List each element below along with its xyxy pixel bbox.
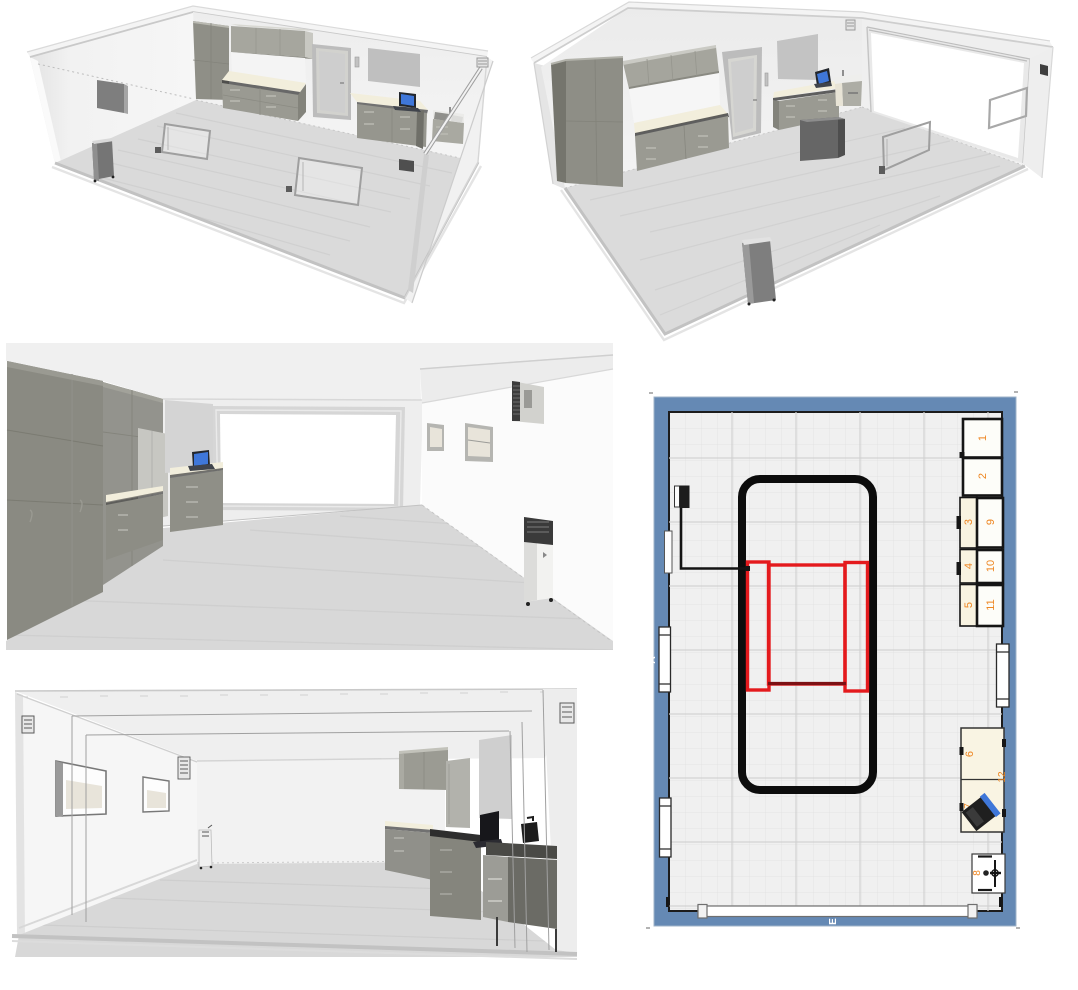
svg-text:6: 6	[964, 751, 976, 757]
svg-text:2: 2	[977, 473, 989, 479]
svg-text:5: 5	[963, 602, 975, 608]
svg-text:E: E	[828, 918, 839, 925]
svg-text:9: 9	[985, 519, 997, 525]
svg-text:A: A	[647, 656, 658, 663]
svg-text:12: 12	[997, 771, 1008, 783]
svg-text:10: 10	[985, 560, 997, 572]
svg-text:11: 11	[985, 599, 997, 610]
svg-text:8: 8	[972, 870, 983, 876]
svg-text:3: 3	[963, 519, 975, 525]
svg-text:4: 4	[963, 563, 975, 569]
svg-text:1: 1	[977, 435, 989, 441]
